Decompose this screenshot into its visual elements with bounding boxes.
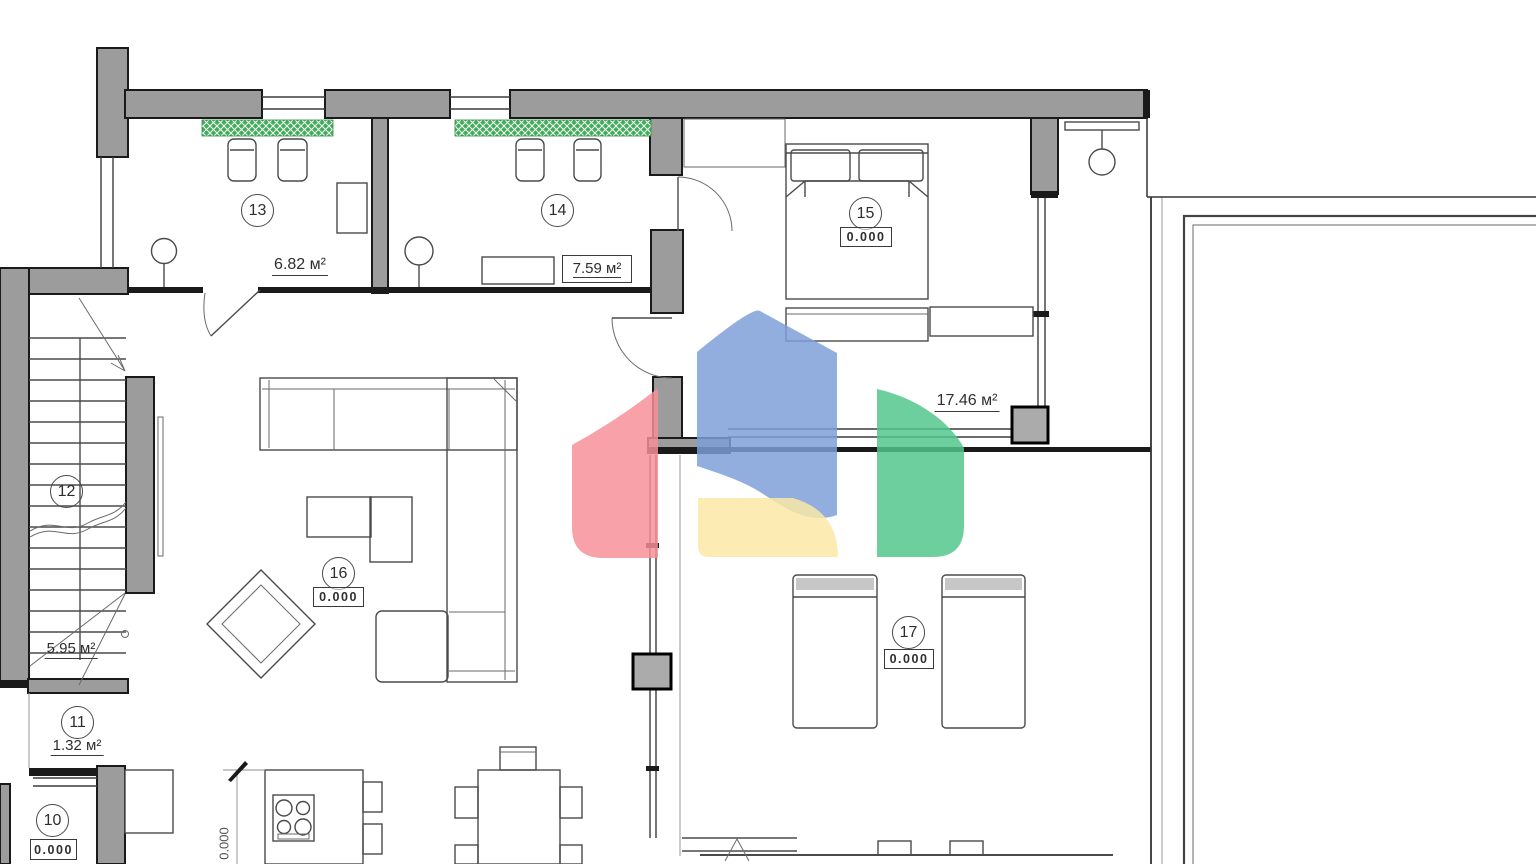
sofa bbox=[447, 378, 517, 682]
room-area-label-13: 6.82 м² bbox=[272, 256, 328, 276]
room-number-badge-12: 12 bbox=[50, 475, 83, 508]
zone-area-label: 17.46 м² bbox=[935, 392, 1000, 412]
console bbox=[930, 307, 1033, 336]
room-number-badge-13: 13 bbox=[241, 194, 274, 227]
dimension-tick bbox=[228, 761, 248, 782]
bedroom-furniture bbox=[684, 119, 1139, 341]
folding-door-mark bbox=[725, 839, 749, 861]
ottoman bbox=[376, 611, 448, 682]
room-number-badge-17: 17 bbox=[892, 616, 925, 649]
room-number-badge-10: 10 bbox=[36, 804, 69, 837]
pendant-light-icon bbox=[1089, 149, 1115, 175]
closet bbox=[684, 119, 785, 167]
chair bbox=[560, 845, 582, 864]
room-area-label-11: 1.32 м² bbox=[51, 737, 104, 756]
elevation-mark-10: 0.000 bbox=[30, 839, 77, 860]
cabinet bbox=[337, 183, 367, 233]
room-area-label-14: 7.59 м² bbox=[573, 260, 622, 278]
floor-plan-canvas: 13 6.82 м² 14 7.59 м² 15 0.000 17.46 м² … bbox=[0, 0, 1536, 864]
elevation-mark-17: 0.000 bbox=[884, 649, 934, 669]
vent-hatch-14 bbox=[455, 120, 651, 136]
coffee-table bbox=[370, 497, 412, 562]
chair bbox=[455, 787, 478, 818]
room-number-badge-16: 16 bbox=[322, 557, 355, 590]
pool bbox=[1147, 118, 1536, 864]
bed-bench bbox=[786, 308, 928, 341]
sink-icon bbox=[405, 237, 433, 265]
watermark-blue-shape bbox=[697, 311, 837, 519]
room-area-label-12: 5.95 м² bbox=[45, 640, 98, 659]
living-room-furniture bbox=[207, 378, 517, 682]
kitchen-cabinet bbox=[125, 770, 173, 833]
washer-icon bbox=[574, 139, 601, 181]
shelf bbox=[1065, 122, 1139, 130]
pillow bbox=[859, 150, 923, 181]
kitchen-furniture bbox=[125, 761, 382, 864]
floor-plan-drawing bbox=[0, 0, 1536, 864]
chair bbox=[878, 841, 911, 855]
floor-level-dimension-label: 0.000 bbox=[217, 822, 232, 864]
washer-icon bbox=[516, 139, 544, 181]
coffee-table bbox=[307, 497, 371, 537]
handrail bbox=[158, 417, 163, 556]
dining-furniture bbox=[455, 747, 582, 864]
watermark-green-shape bbox=[877, 389, 964, 557]
washer-icon bbox=[228, 139, 256, 181]
chair bbox=[455, 845, 478, 864]
stool bbox=[363, 824, 382, 854]
column-terrace-west bbox=[633, 654, 671, 689]
terrace-furniture bbox=[682, 575, 1113, 861]
sunbed bbox=[793, 575, 877, 728]
watermark-red-shape bbox=[572, 388, 658, 558]
stool bbox=[363, 782, 382, 812]
column-terrace-north bbox=[1012, 407, 1048, 443]
dining-table bbox=[478, 770, 560, 864]
chair bbox=[950, 841, 983, 855]
room-area-box-14: 7.59 м² bbox=[562, 255, 632, 283]
chair bbox=[500, 747, 536, 770]
worktop bbox=[482, 257, 554, 284]
pendant-light-icon bbox=[152, 239, 177, 264]
room-number-badge-14: 14 bbox=[541, 194, 574, 227]
elevation-mark-15: 0.000 bbox=[840, 227, 892, 247]
vent-hatch-13 bbox=[202, 120, 333, 136]
washer-icon bbox=[278, 139, 307, 181]
pillow bbox=[791, 150, 850, 181]
chair bbox=[560, 787, 582, 818]
sunbed bbox=[942, 575, 1025, 728]
elevation-mark-16: 0.000 bbox=[313, 587, 364, 607]
house-logo-watermark bbox=[572, 311, 964, 558]
armchair bbox=[207, 570, 315, 678]
room-number-badge-11: 11 bbox=[61, 706, 94, 739]
room-number-badge-15: 15 bbox=[849, 197, 882, 230]
